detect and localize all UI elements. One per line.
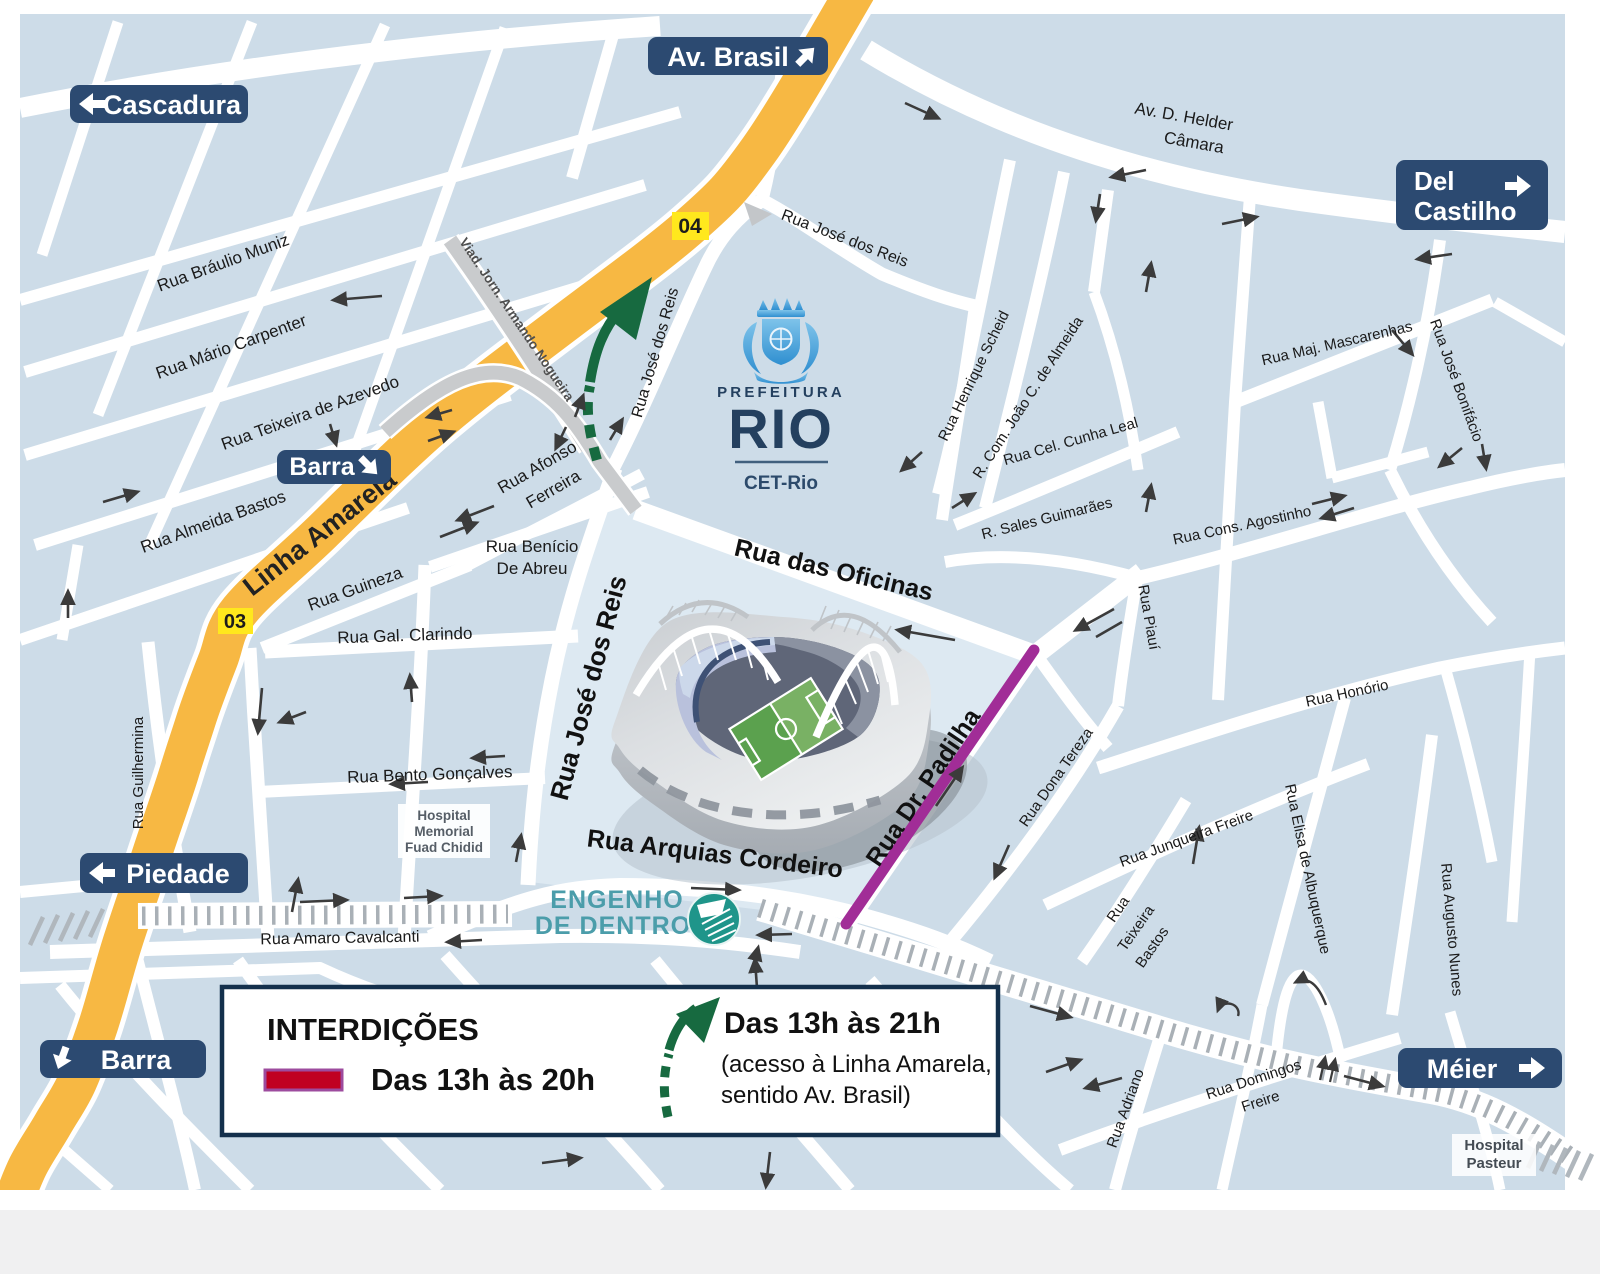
svg-text:Méier: Méier [1427, 1054, 1498, 1084]
svg-text:Av. Brasil: Av. Brasil [667, 42, 789, 72]
svg-text:sentido Av. Brasil): sentido Av. Brasil) [721, 1082, 911, 1109]
svg-text:04: 04 [678, 215, 702, 238]
svg-text:Fuad Chidid: Fuad Chidid [405, 840, 483, 855]
svg-text:Rua Benício: Rua Benício [486, 537, 579, 556]
svg-text:De Abreu: De Abreu [497, 559, 568, 578]
svg-text:Das 13h às 20h: Das 13h às 20h [371, 1062, 595, 1097]
svg-text:Barra: Barra [101, 1045, 173, 1075]
svg-text:Hospital: Hospital [1464, 1137, 1523, 1154]
svg-text:Castilho: Castilho [1414, 196, 1517, 226]
svg-text:(acesso à Linha Amarela,: (acesso à Linha Amarela, [721, 1051, 992, 1078]
svg-text:Barra: Barra [289, 453, 355, 481]
svg-text:RIO: RIO [728, 397, 834, 460]
svg-text:Rua Amaro Cavalcanti: Rua Amaro Cavalcanti [260, 929, 419, 949]
svg-text:CET-Rio: CET-Rio [744, 473, 818, 494]
svg-text:ENGENHO: ENGENHO [550, 886, 683, 914]
svg-text:Pasteur: Pasteur [1466, 1155, 1521, 1172]
svg-text:Del: Del [1414, 166, 1454, 196]
svg-text:DE DENTRO: DE DENTRO [535, 912, 691, 940]
svg-text:Das 13h às 21h: Das 13h às 21h [724, 1007, 941, 1040]
svg-text:Memorial: Memorial [414, 824, 473, 839]
svg-text:Rua Guilhermina: Rua Guilhermina [130, 716, 147, 829]
svg-text:03: 03 [224, 611, 246, 633]
svg-text:INTERDIÇÕES: INTERDIÇÕES [267, 1011, 479, 1047]
svg-text:Hospital: Hospital [417, 808, 470, 823]
svg-text:Cascadura: Cascadura [103, 90, 242, 120]
svg-text:Piedade: Piedade [126, 859, 230, 889]
